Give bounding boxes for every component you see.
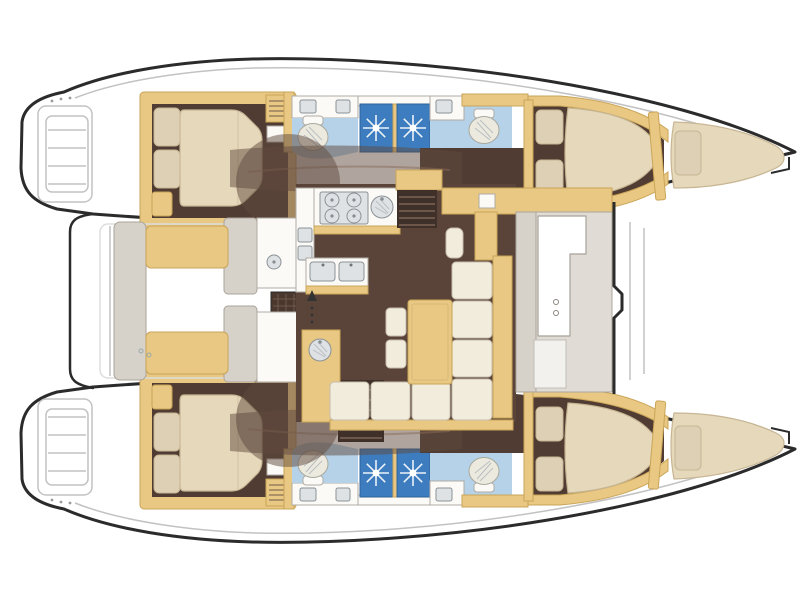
- wet-bar-module: [257, 218, 301, 288]
- toilet: [469, 109, 499, 144]
- sofa-backrest: [493, 256, 512, 418]
- saloon-front-wall: [614, 202, 622, 394]
- stool-cushion: [386, 340, 406, 368]
- stair-landing: [396, 170, 442, 190]
- burner-icon: [325, 209, 339, 223]
- cabin-seat: [152, 192, 172, 216]
- pillow: [154, 150, 180, 188]
- shower-drain-icon: [363, 115, 389, 141]
- shower-divider: [393, 104, 397, 152]
- catamaran-floor-plan: [0, 0, 800, 601]
- floor-plan-svg: [0, 0, 800, 601]
- sofa-cushion: [452, 340, 492, 377]
- sofa-backrest: [330, 420, 513, 430]
- counter-base: [306, 286, 368, 294]
- round-sink: [371, 196, 393, 218]
- cockpit-bench-cushion: [146, 332, 228, 374]
- sofa-cushion: [330, 382, 369, 420]
- stool-cushion: [386, 308, 406, 336]
- bench-backrest: [224, 218, 257, 294]
- saloon-table: [408, 300, 452, 384]
- aft-crossbeam: [70, 214, 93, 388]
- nav-cabinet: [475, 212, 497, 260]
- burner-icon: [347, 193, 361, 207]
- aft-cockpit: [70, 214, 305, 388]
- wet-bar-sink: [309, 339, 331, 361]
- bench-backrest: [224, 306, 257, 382]
- sofa-cushion: [452, 301, 492, 338]
- forward-sideboard: [442, 188, 612, 214]
- settee-backrest: [516, 212, 536, 392]
- appliance: [298, 228, 312, 242]
- forward-settee: [516, 212, 612, 392]
- faucet: [322, 264, 325, 267]
- pillow: [536, 110, 563, 144]
- burner-icon: [325, 193, 339, 207]
- counter-base: [314, 226, 400, 234]
- wet-bar-module: [257, 312, 301, 382]
- settee-step: [534, 340, 566, 388]
- cockpit-bench-cushion: [146, 226, 228, 268]
- nav-instrument: [479, 194, 495, 208]
- locker-band: [462, 94, 528, 106]
- grill-burner-icon: [267, 255, 281, 269]
- sofa-cushion: [452, 262, 492, 299]
- vanity-sink: [300, 100, 316, 113]
- stairs-starboard: [397, 190, 437, 228]
- burner-icon: [347, 209, 361, 223]
- nav-seat: [446, 228, 463, 258]
- sofa-cushion: [371, 382, 410, 420]
- sofa-cushion: [412, 382, 450, 420]
- sofa-cushion: [452, 379, 492, 420]
- bench-backrest: [114, 222, 146, 380]
- vanity-sink: [336, 100, 350, 113]
- pillow: [675, 131, 701, 175]
- foredeck: [614, 202, 644, 394]
- faucet: [350, 264, 353, 267]
- shower-drain-icon: [400, 115, 426, 141]
- vanity-sink: [436, 100, 452, 113]
- pillow: [154, 108, 180, 146]
